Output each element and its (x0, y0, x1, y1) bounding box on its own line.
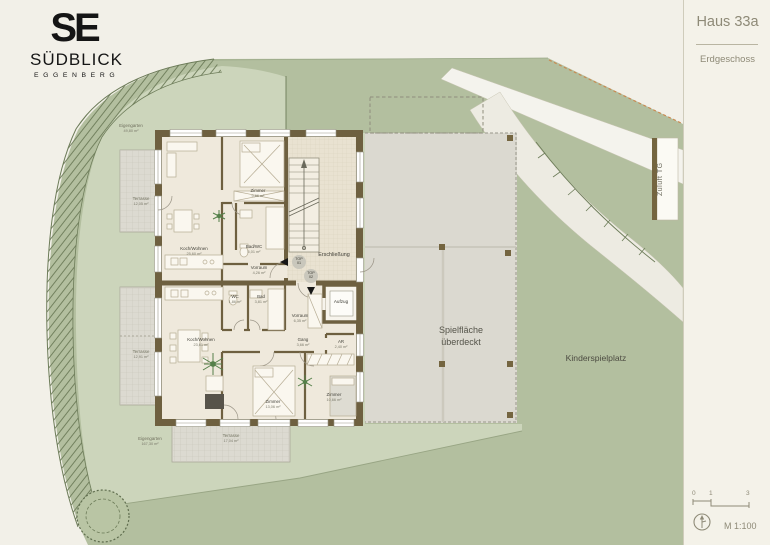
terrace-label-3: Terrasse 17,04 m² (223, 433, 240, 444)
room-label-top01-bad: Bad/WC 5,01 m² (246, 244, 262, 255)
scale-tick-0: 0 (692, 490, 696, 497)
room-label-top01-zimmer: Zimmer 9,66 m² (251, 188, 266, 199)
title-divider (696, 44, 758, 45)
room-label-top01-vorraum: Vorraum 4,26 m² (251, 265, 268, 276)
room-label-top02-gang: Gang 3,66 m² (297, 337, 310, 348)
room-label-top02-wc: WC 1,86 m² (229, 294, 242, 305)
scale-text: M 1:100 (724, 521, 757, 531)
north-arrow-icon (692, 512, 712, 532)
floorplan-sheet: SE SÜDBLICK EGGENBERG Eigengarten 49,80 … (0, 0, 770, 545)
covered-play-area-label: Spielfläche überdeckt (439, 324, 483, 348)
site-plan-drawing (0, 0, 770, 545)
room-label-top02-vorraum: Vorraum 6,35 m² (292, 313, 309, 324)
covered-play-area (365, 97, 517, 423)
terrace-label-1: Terrasse 12,05 m² (133, 196, 150, 207)
garden-label-south: Eigengarten 167,30 m² (138, 436, 162, 447)
unit-badge-top01: TOP 01 (295, 257, 303, 266)
scale-block: 0 1 3 M 1:100 (684, 488, 770, 545)
logo-monogram: SE (30, 8, 118, 48)
room-label-top02-bad: Bad 3,81 m² (255, 294, 268, 305)
company-logo: SE SÜDBLICK EGGENBERG (30, 8, 118, 79)
staircase (289, 158, 319, 252)
room-label-top02-zimmer2: Zimmer 10,66 m² (327, 392, 342, 403)
building (155, 130, 375, 427)
floor-label: Erdgeschoss (684, 54, 770, 65)
room-label-top02-living: Koch/Wohnen 23,61 m² (187, 337, 215, 348)
sheet-title: Haus 33a (684, 14, 770, 30)
elevator-label: Aufzug (334, 299, 348, 304)
scale-tick-3: 3 (746, 490, 750, 497)
room-label-top02-ar: AR 2,40 m² (335, 339, 348, 350)
logo-title: SÜDBLICK (30, 50, 118, 70)
garden-label-north: Eigengarten 49,80 m² (119, 123, 143, 134)
scale-tick-1: 1 (709, 490, 713, 497)
bush (77, 490, 129, 542)
scale-bar (692, 499, 752, 509)
room-label-top02-zimmer1: Zimmer 13,06 m² (266, 399, 281, 410)
room-label-top01-living: Koch/Wohnen 25,60 m² (180, 246, 208, 257)
garage-vent-label: Zuluft TG (657, 140, 678, 218)
playground-label: Kinderspielplatz (566, 353, 627, 363)
logo-subtitle: EGGENBERG (34, 72, 118, 79)
circulation-label: Erschließung (318, 252, 349, 258)
title-block-sidebar: Haus 33a Erdgeschoss 0 1 3 M 1:100 (683, 0, 770, 545)
unit-badge-top02: TOP 02 (307, 271, 315, 280)
terrace-label-2: Terrasse 12,91 m² (133, 349, 150, 360)
